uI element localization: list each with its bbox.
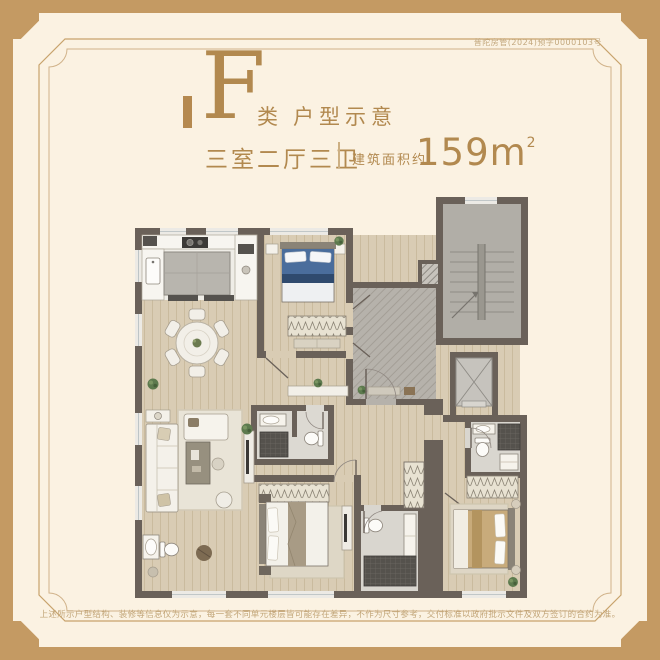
shower — [498, 424, 520, 450]
type-title: 类户型示意 — [257, 101, 397, 131]
poster: 普陀房管(2024)预字0000103号 F 类户型示意 三室二厅三卫 建筑面积… — [0, 0, 660, 660]
type-subtitle: 户型示意 — [293, 105, 397, 129]
type-letter: F — [201, 40, 266, 133]
desk — [186, 442, 210, 484]
console-table — [288, 386, 348, 396]
wardrobe — [288, 316, 346, 336]
shower — [364, 556, 416, 586]
kitchen — [142, 235, 257, 301]
hall-closet — [404, 462, 424, 508]
shower — [260, 432, 288, 457]
permit-number: 普陀房管(2024)预字0000103号 — [474, 37, 602, 48]
spec-divider — [338, 142, 340, 168]
elevator — [456, 358, 492, 407]
title-accent-bar — [183, 96, 192, 128]
tv — [246, 440, 249, 474]
floor-plan — [120, 188, 540, 603]
wardrobe — [467, 476, 518, 498]
area-value: 159m2 — [416, 131, 537, 174]
type-suffix: 类 — [257, 105, 283, 129]
disclaimer-text: 上述所示户型结构、装修等信息仅为示意，每一套不同单元楼层皆可能存在差异，不作为尺… — [0, 608, 660, 620]
